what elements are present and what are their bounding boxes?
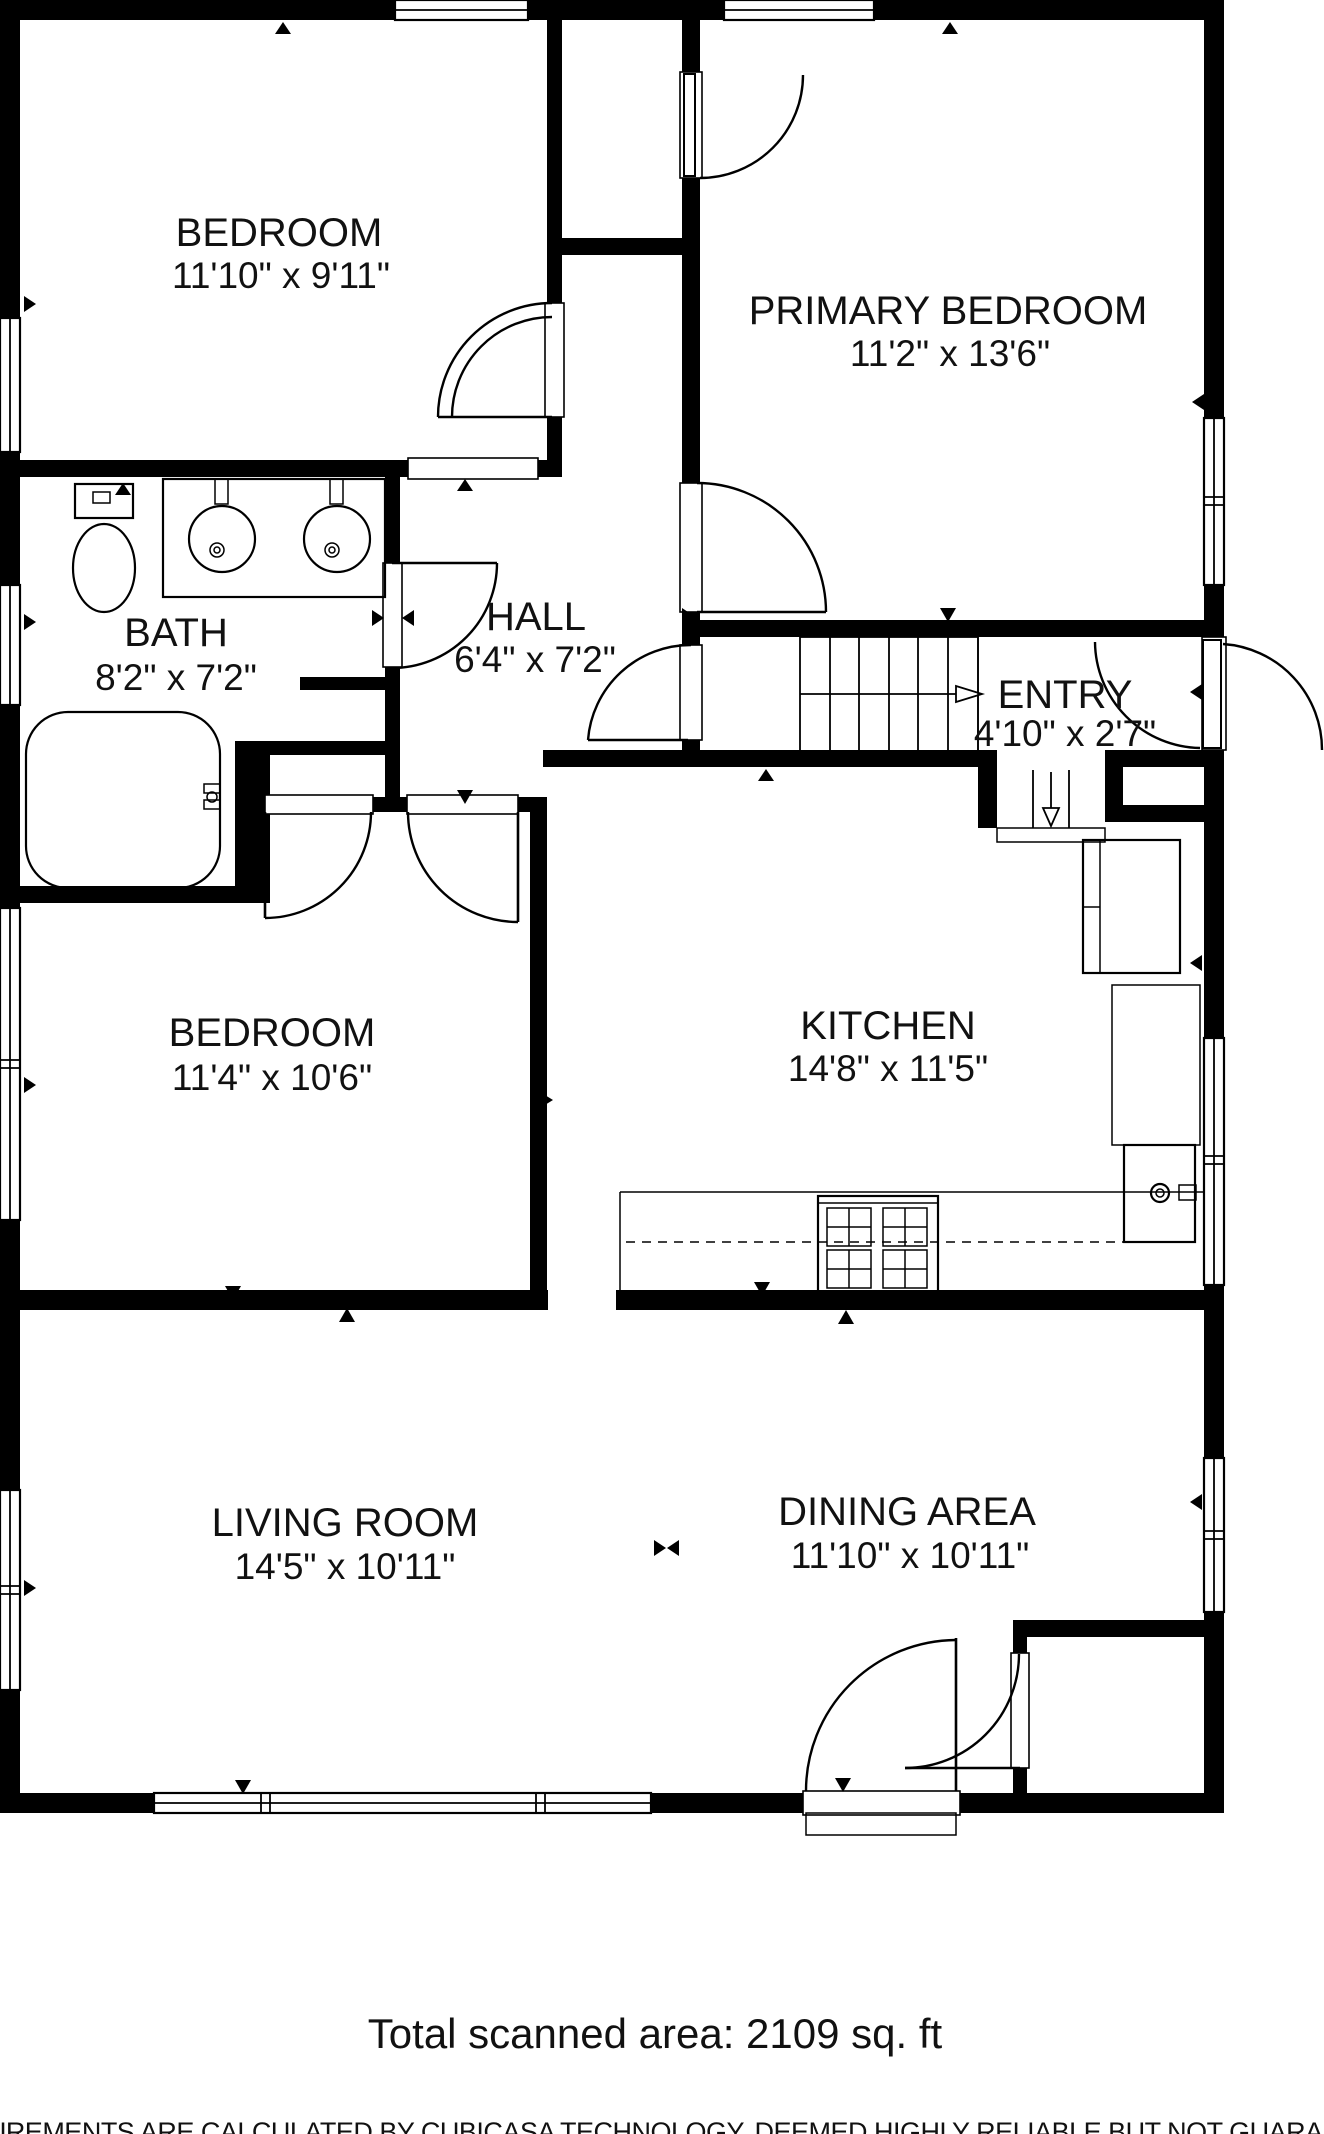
opening-hall-stairs <box>680 645 702 740</box>
stove-fixture <box>818 1196 938 1292</box>
wall-closet-divider <box>562 238 700 255</box>
floorplan-drawing: BEDROOM 11'10" x 9'11" PRIMARY BEDROOM 1… <box>0 0 1324 2134</box>
room-dims-dining-area: 11'10" x 10'11" <box>791 1535 1030 1576</box>
window-top-primary <box>724 0 874 20</box>
room-dims-hall: 6'4" x 7'2" <box>454 639 616 680</box>
room-dims-bedroom-middle: 11'4" x 10'6" <box>172 1057 372 1098</box>
opening-bedroom2-closet <box>265 795 373 814</box>
wall-exterior-top <box>0 0 1224 20</box>
room-dims-bath: 8'2" x 7'2" <box>95 657 257 698</box>
wall-bedroom2-right <box>530 812 547 1293</box>
toilet-fixture <box>73 484 135 612</box>
bathtub-fixture <box>26 712 220 888</box>
opening-bedroom1-hall <box>408 458 538 479</box>
opening-bedroom1-closet <box>545 303 564 417</box>
room-label-dining-area: DINING AREA <box>778 1490 1036 1534</box>
room-dims-primary-bedroom: 11'2" x 13'6" <box>850 333 1050 374</box>
refrigerator-fixture <box>1083 840 1180 973</box>
room-dims-entry: 4'10" x 2'7" <box>974 713 1156 754</box>
window-right-dining <box>1204 1458 1224 1612</box>
room-label-bath: BATH <box>124 611 228 655</box>
wall-living-north <box>20 1290 548 1310</box>
door-dining-closet <box>905 1654 1020 1768</box>
floorplan-page: BEDROOM 11'10" x 9'11" PRIMARY BEDROOM 1… <box>0 0 1324 2134</box>
room-label-entry: ENTRY <box>998 673 1133 717</box>
wall-steps-west <box>978 750 997 828</box>
door-bedroom1-closet <box>438 303 552 417</box>
basement-steps <box>997 770 1105 842</box>
window-right-primary <box>1204 418 1224 585</box>
wall-bath-south-stub <box>300 677 400 690</box>
wall-dining-closet-north <box>1013 1620 1204 1637</box>
wall-closet-c-north <box>270 741 385 755</box>
wall-steps-east <box>1105 750 1123 822</box>
door-bedroom2-closet <box>265 812 371 918</box>
room-label-bedroom-top: BEDROOM <box>176 211 383 255</box>
window-left-bedroom1 <box>0 318 20 452</box>
disclaimer-text: MEASUREMENTS ARE CALCULATED BY CUBICASA … <box>0 2117 1324 2134</box>
door-bedroom2-hall <box>408 812 518 922</box>
window-bottom-living <box>154 1793 651 1813</box>
room-label-living-room: LIVING ROOM <box>212 1501 479 1545</box>
kitchen-counter-sink-fixture <box>1112 985 1200 1242</box>
wall-entry-closet-south <box>1123 805 1204 822</box>
room-label-kitchen: KITCHEN <box>800 1004 976 1048</box>
total-scanned-area-text: Total scanned area: 2109 sq. ft <box>368 2010 943 2057</box>
window-top-bedroom1 <box>395 0 528 20</box>
room-dims-living-room: 14'5" x 10'11" <box>235 1546 456 1587</box>
room-label-hall: HALL <box>486 595 586 639</box>
vanity-double-sink-fixture <box>163 479 385 597</box>
opening-dining-closet <box>1011 1653 1029 1768</box>
door-hall-primary <box>697 483 826 612</box>
room-label-primary-bedroom: PRIMARY BEDROOM <box>749 289 1148 333</box>
room-dims-kitchen: 14'8" x 11'5" <box>788 1048 988 1089</box>
kitchen-counter-band <box>620 1192 1204 1290</box>
stairs-up <box>800 637 982 752</box>
opening-patio-door <box>803 1791 960 1815</box>
window-left-bedroom2 <box>0 908 20 1220</box>
window-left-bath <box>0 585 20 705</box>
room-label-bedroom-middle: BEDROOM <box>169 1011 376 1055</box>
window-right-kitchen <box>1204 1038 1224 1285</box>
window-left-living <box>0 1490 20 1690</box>
room-dims-bedroom-top: 11'10" x 9'11" <box>172 255 390 296</box>
steps-down-arrow <box>1043 808 1059 826</box>
burners <box>827 1208 927 1288</box>
wall-entry-north <box>697 620 1204 637</box>
patio-landing <box>806 1813 956 1835</box>
opening-hall-primary <box>680 483 702 612</box>
